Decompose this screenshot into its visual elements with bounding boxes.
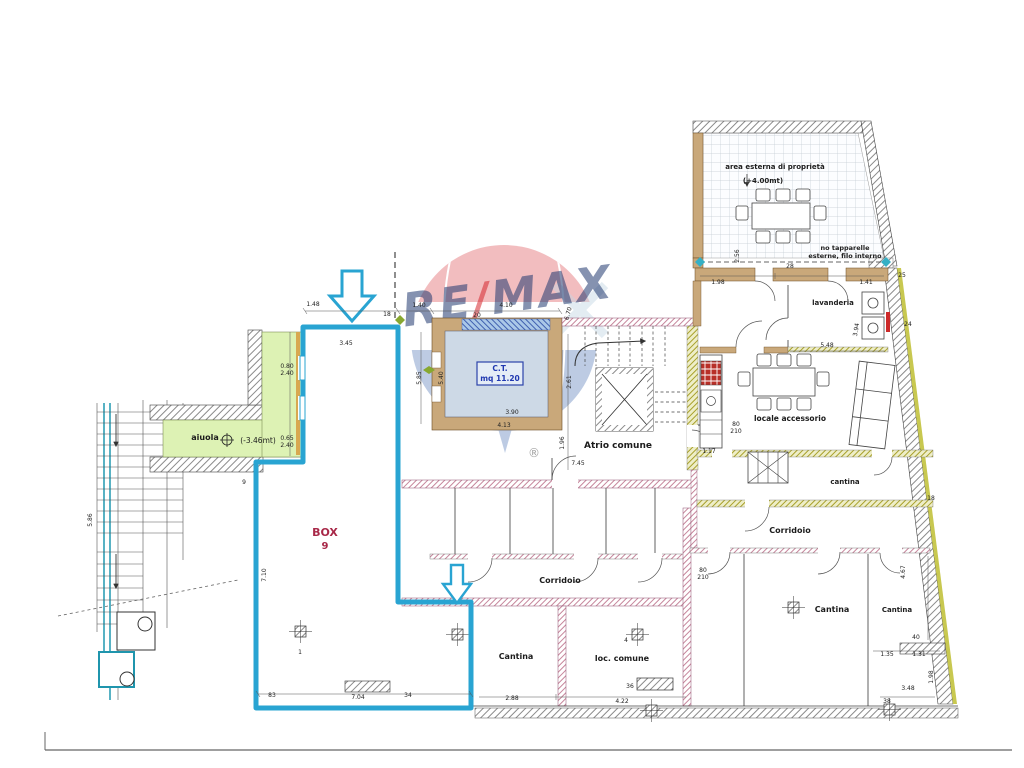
dimension-label: 4.22 (615, 698, 629, 705)
label-corridoio-center: Corridoio (539, 576, 581, 585)
dimension-label: 7.10 (261, 568, 268, 582)
dimension-label: 1.17 (702, 448, 716, 455)
dimension-label: 5.86 (87, 513, 94, 527)
label-terrace-level: (+4.00mt) (743, 177, 783, 185)
dimension-label: 4.10 (499, 302, 513, 309)
label-cantina-small: cantina (830, 478, 860, 486)
dimension-label: 28 (786, 263, 794, 270)
ground-line (45, 732, 1012, 750)
dimension-label: 2.56 (734, 249, 741, 263)
dimension-label: 3.48 (901, 685, 915, 692)
label-lavanderia: lavanderia (812, 299, 854, 307)
label-locale-accessorio: locale accessorio (754, 414, 826, 423)
dimension-label: 5.85 (416, 371, 423, 385)
dimension-label: 210 (697, 574, 709, 581)
dimension-label: 1.35 (880, 651, 894, 658)
dimension-label: 0.80 (280, 363, 294, 370)
dimension-label: 5.48 (820, 342, 834, 349)
dimension-label: 40 (912, 634, 920, 641)
dimension-label: 1.48 (306, 301, 320, 308)
washing-machines (862, 292, 884, 339)
elevator (596, 368, 653, 431)
dimension-label: 4.67 (900, 565, 907, 579)
label-loc-comune: loc. comune (595, 654, 650, 663)
label-aiuola-level: (-3.46mt) (240, 436, 276, 445)
dimension-label: 80 (699, 567, 707, 574)
aiuola-area (150, 330, 303, 472)
dimension-label: 24 (904, 321, 912, 328)
dimension-label: 1.98 (711, 279, 725, 286)
dimension-label: 80 (732, 421, 740, 428)
label-box-number: 9 (322, 541, 329, 552)
label-terrace-note-1: no tapparelle (820, 244, 870, 252)
label-atrio: Atrio comune (584, 441, 652, 451)
dimension-label: 38 (883, 698, 891, 705)
sofa (849, 361, 895, 449)
label-aiuola: aiuola (191, 433, 218, 442)
entrance-arrow-large-icon (330, 271, 374, 321)
dimension-label: 210 (730, 428, 742, 435)
label-cantina-right: Cantina (815, 605, 850, 614)
dimension-label: 1.40 (412, 302, 426, 309)
dimension-label: 20 (473, 312, 481, 319)
red-accent (886, 312, 890, 332)
dimension-label: 18 (927, 495, 935, 502)
dimension-label: 25 (898, 272, 906, 279)
label-ct-area: mq 11.20 (480, 374, 520, 383)
label-box: BOX (312, 526, 338, 539)
dimension-label: 3.90 (505, 409, 519, 416)
kitchen-counter (700, 355, 722, 448)
dimension-label: 9 (242, 479, 246, 486)
dimension-label: 4.13 (497, 422, 511, 429)
dimension-label: 2.40 (280, 370, 294, 377)
dimension-label: 36 (626, 683, 634, 690)
label-corridoio-right: Corridoio (769, 526, 811, 535)
registered-mark: ® (528, 446, 540, 460)
label-cantina-far-right: Cantina (882, 606, 913, 614)
entrance-arrow-small-icon (443, 565, 471, 603)
dimension-label: 5.40 (438, 371, 445, 385)
dimension-label: 2.40 (280, 442, 294, 449)
dimension-label: 83 (268, 692, 276, 699)
central-walls (402, 456, 958, 718)
dining-table (738, 354, 829, 410)
dimension-label: 3.45 (339, 340, 353, 347)
label-cantina-bottom: Cantina (499, 652, 534, 661)
dimension-label: 7.04 (351, 694, 365, 701)
utility-boxes (99, 612, 155, 687)
small-stair (748, 452, 788, 483)
dimension-label: 1.31 (912, 651, 926, 658)
dimension-label: 34 (404, 692, 412, 699)
dimension-label: 1.41 (859, 279, 873, 286)
dimension-label: 1 (298, 649, 302, 656)
dimension-label: 0.65 (280, 435, 294, 442)
stove-icon (701, 361, 721, 385)
label-terrace-note-2: esterne, filo interno (808, 252, 882, 260)
dimension-label: 1.96 (559, 436, 566, 450)
dimension-label: 18 (383, 311, 391, 318)
dimension-label: 2.61 (566, 375, 573, 389)
label-terrace-title: area esterna di proprietà (725, 163, 825, 171)
dimension-label: 3.94 (852, 322, 861, 337)
dimension-label: 2.88 (505, 695, 519, 702)
dimension-label: 4 (624, 637, 628, 644)
label-ct-title: C.T. (492, 364, 507, 373)
dimension-label: 1.98 (928, 670, 935, 684)
floor-plan-canvas: RE/MAX ® (0, 0, 1024, 768)
dimension-label: 7.45 (571, 460, 585, 467)
